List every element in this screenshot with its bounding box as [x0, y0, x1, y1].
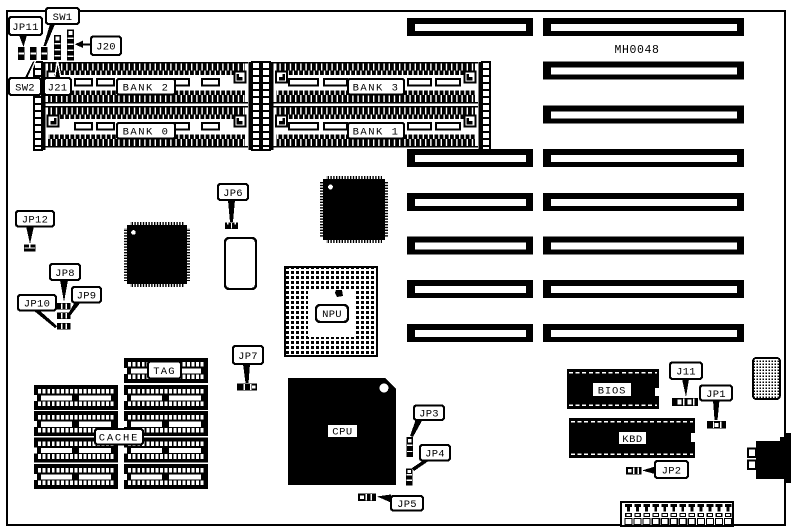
svg-text:JP6: JP6 — [223, 188, 243, 200]
svg-text:JP5: JP5 — [397, 499, 417, 511]
svg-text:JP3: JP3 — [419, 409, 439, 421]
svg-text:MH0048: MH0048 — [614, 44, 659, 57]
svg-text:BANK 3: BANK 3 — [353, 82, 400, 94]
svg-text:CACHE: CACHE — [99, 433, 140, 445]
svg-text:BIOS: BIOS — [598, 385, 626, 397]
svg-text:BANK 1: BANK 1 — [353, 126, 400, 138]
svg-text:JP7: JP7 — [238, 351, 258, 363]
svg-text:JP1: JP1 — [706, 389, 726, 401]
svg-text:JP10: JP10 — [24, 299, 50, 311]
svg-text:JP8: JP8 — [55, 268, 75, 280]
svg-text:KBD: KBD — [622, 434, 642, 446]
svg-text:JP9: JP9 — [77, 291, 97, 303]
svg-text:TAG: TAG — [153, 366, 176, 378]
svg-text:CPU: CPU — [332, 427, 352, 439]
svg-text:SW2: SW2 — [15, 82, 35, 94]
svg-text:BANK 2: BANK 2 — [123, 82, 170, 94]
svg-text:NPU: NPU — [322, 309, 342, 321]
svg-text:JP12: JP12 — [22, 215, 48, 227]
svg-text:J21: J21 — [48, 82, 68, 94]
svg-text:JP11: JP11 — [12, 22, 38, 34]
svg-text:JP4: JP4 — [425, 449, 445, 461]
svg-text:J20: J20 — [96, 42, 116, 54]
svg-text:J11: J11 — [676, 367, 696, 379]
svg-text:BANK 0: BANK 0 — [123, 126, 170, 138]
svg-text:JP2: JP2 — [662, 465, 682, 477]
svg-text:SW1: SW1 — [53, 12, 73, 24]
